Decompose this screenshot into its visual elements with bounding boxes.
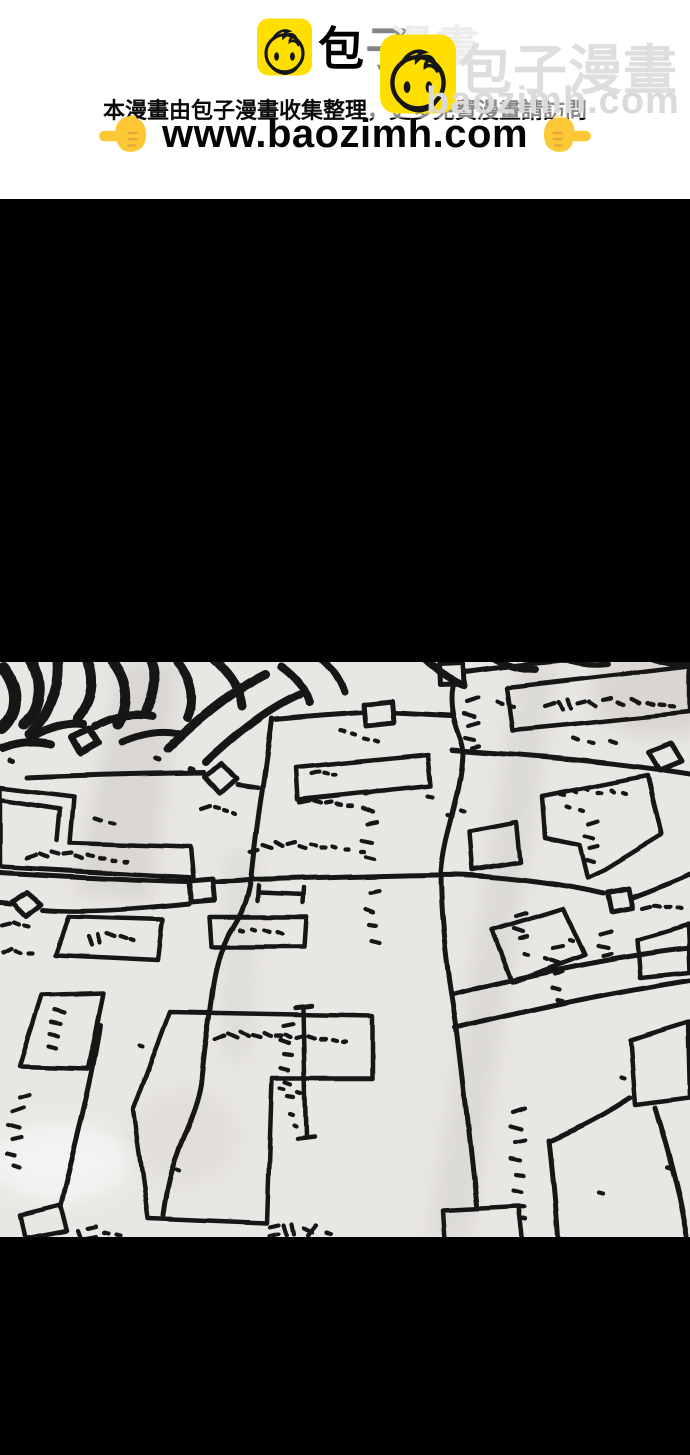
site-banner: 包子 漫畫 本漫畫由包子漫畫收集整理，更多免費漫畫請訪問 www.baozimh… (0, 0, 690, 199)
comic-reader-page: 包子 漫畫 本漫畫由包子漫畫收集整理，更多免費漫畫請訪問 www.baozimh… (0, 0, 690, 1455)
watermark-overlay: 包子漫畫 baozimh.com (368, 14, 690, 118)
baozi-bun-icon (257, 17, 312, 77)
hand-drawn-street-map-sketch (0, 662, 690, 1237)
letterbox-band-top (0, 199, 690, 662)
comic-panel (0, 662, 690, 1237)
watermark-domain-text: baozimh.com (426, 80, 680, 123)
pointing-right-hand-icon (98, 113, 150, 157)
letterbox-band-bottom (0, 1237, 690, 1455)
